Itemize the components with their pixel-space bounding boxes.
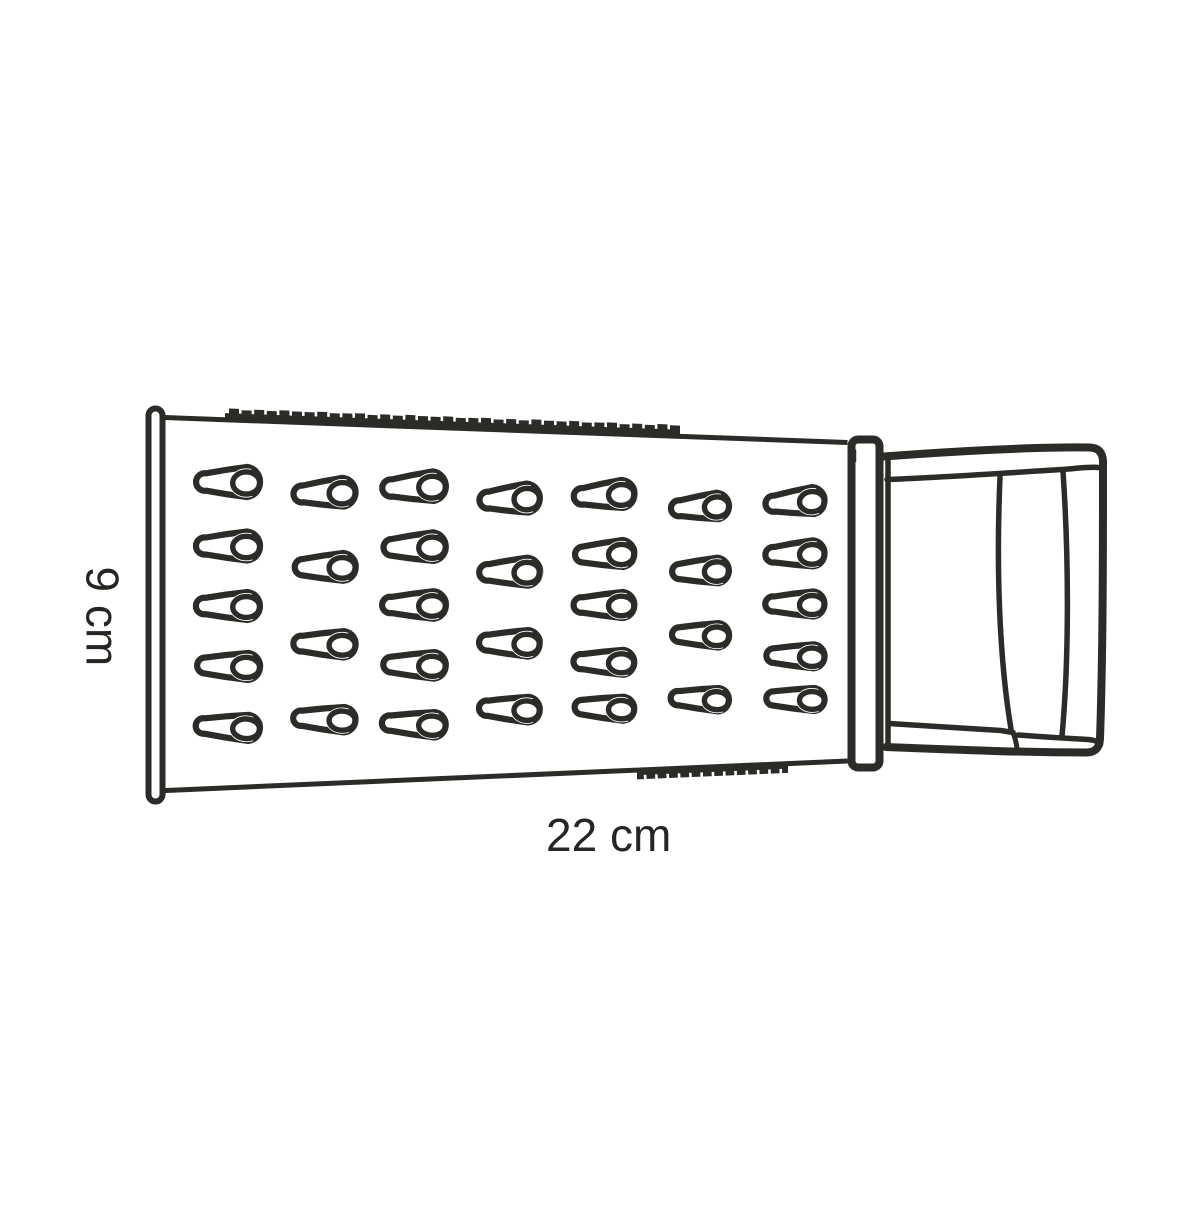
svg-text:9 cm: 9 cm [77,567,129,667]
svg-text:22 cm: 22 cm [546,809,671,861]
